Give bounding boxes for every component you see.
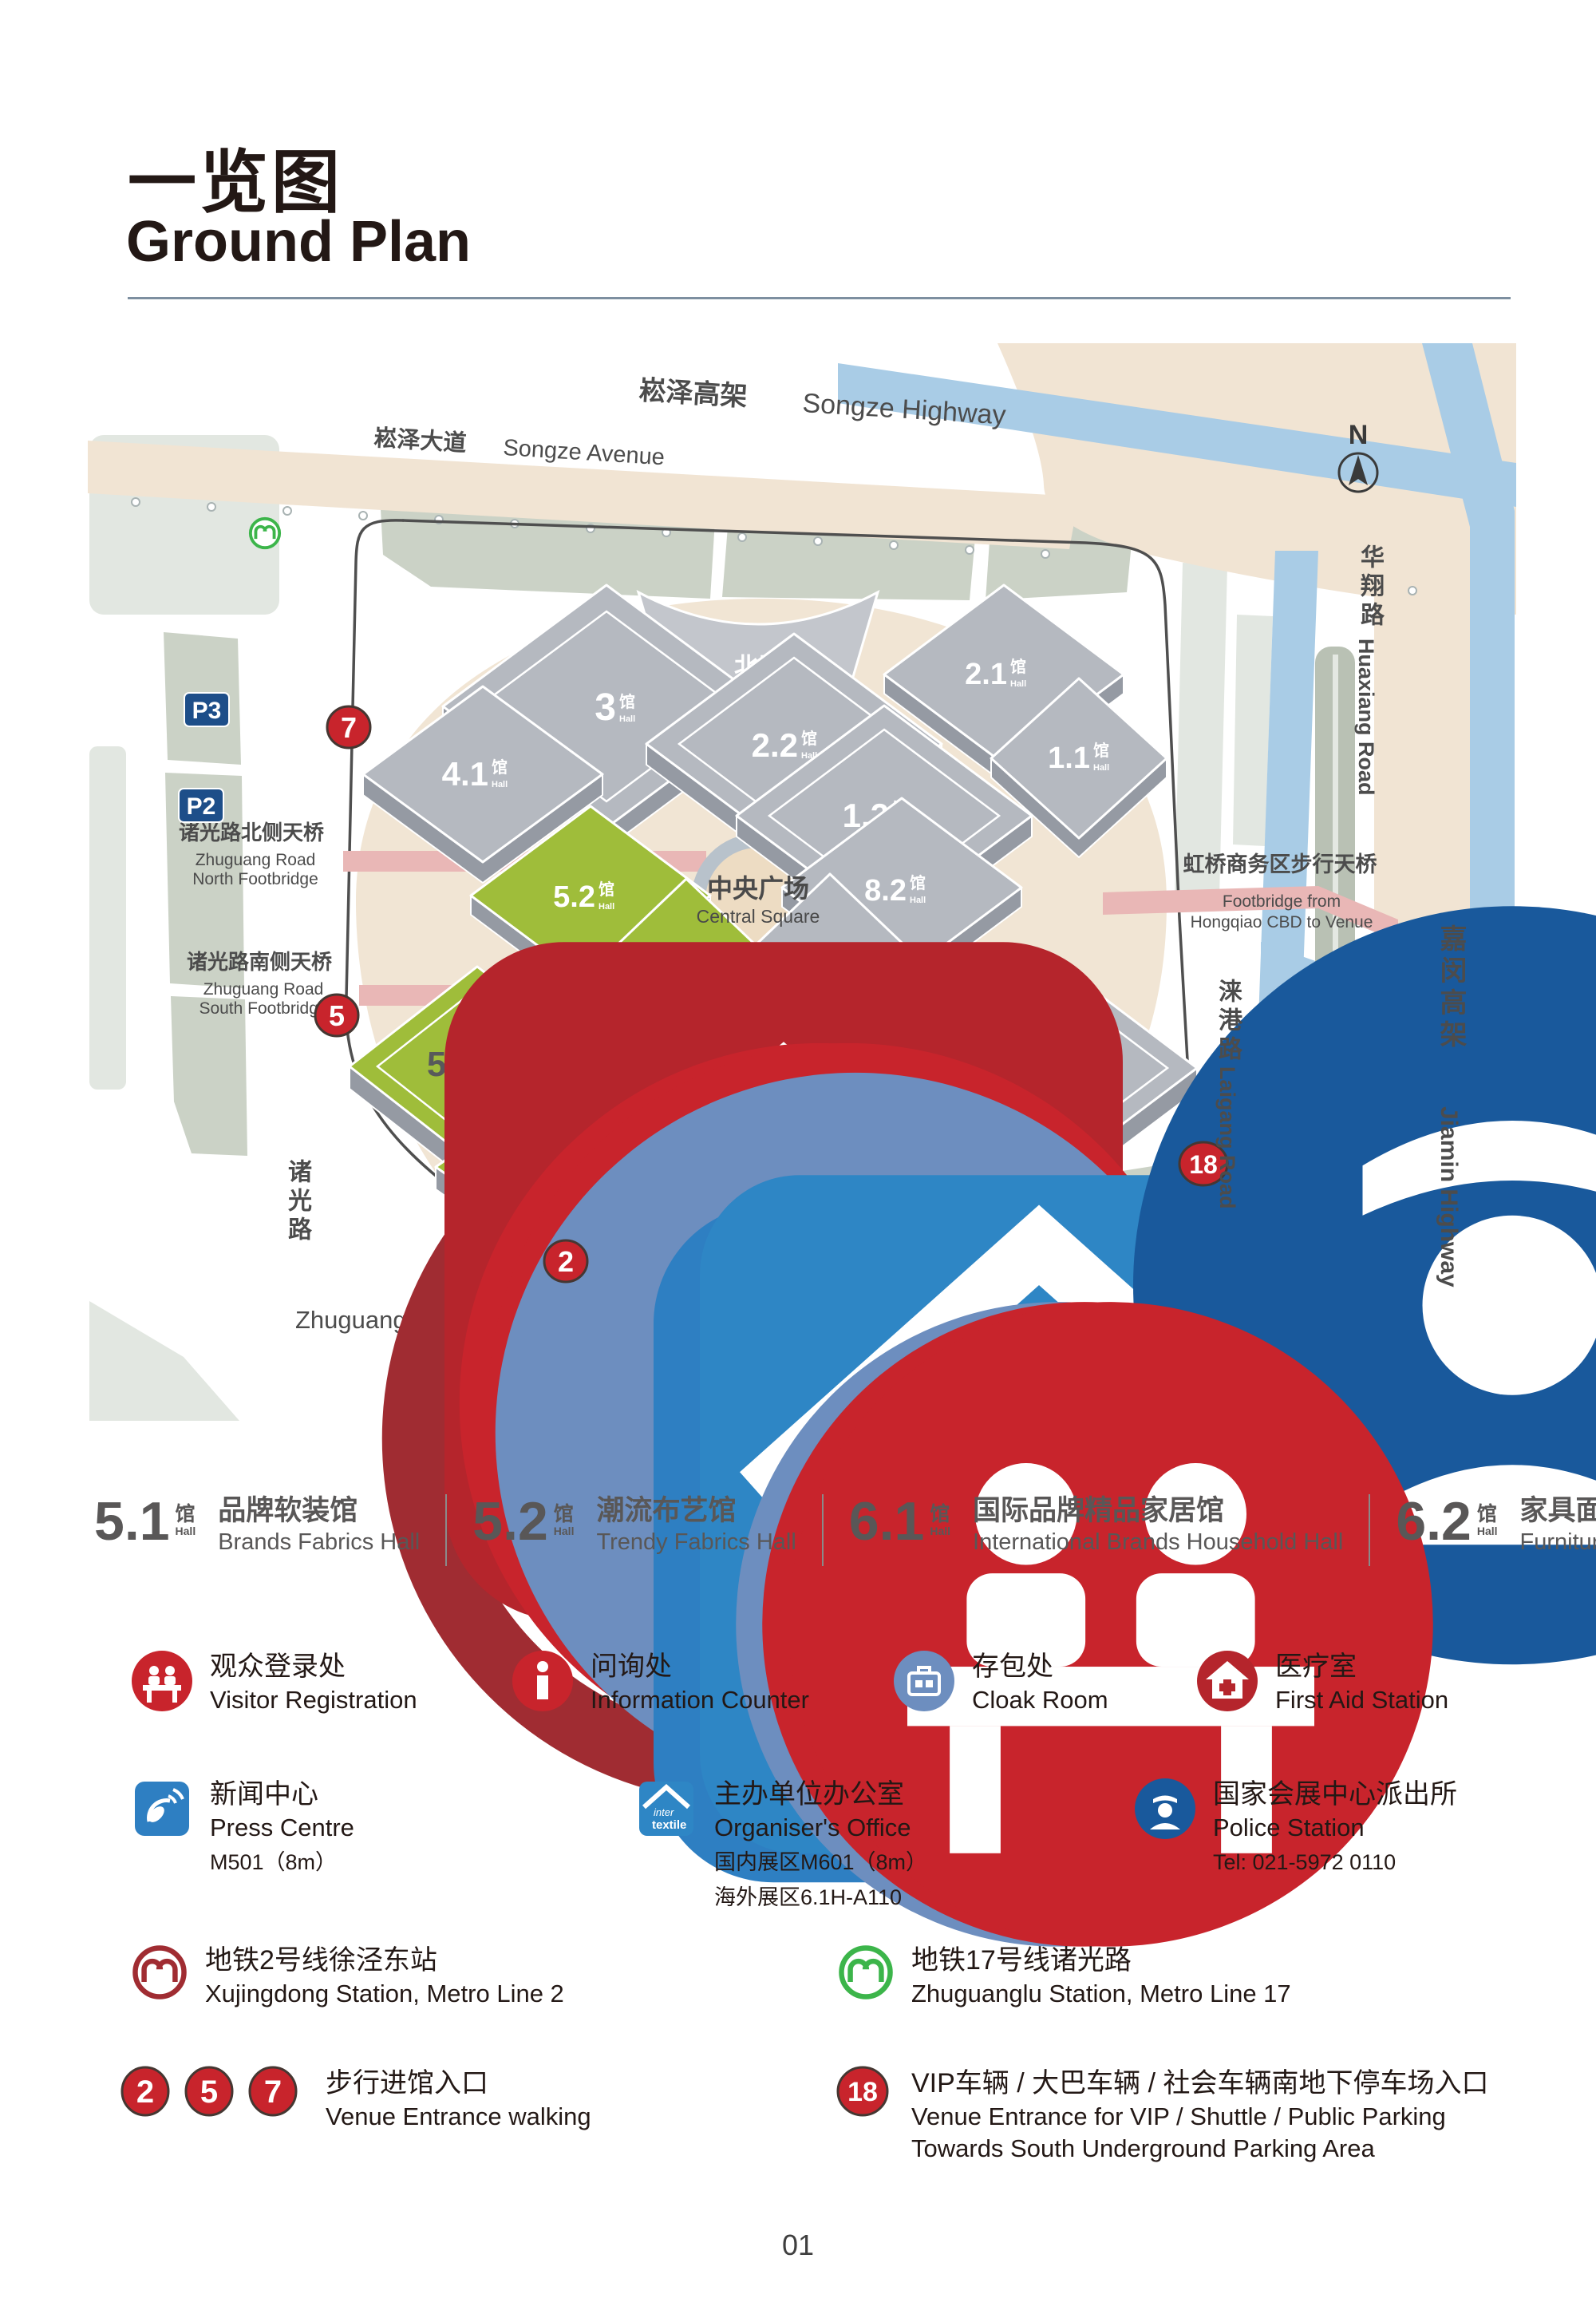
jiamin-highway-cn: 嘉闵高架	[1432, 924, 1471, 1052]
svg-text:Hall: Hall	[1010, 679, 1026, 689]
svg-text:P2: P2	[187, 793, 216, 820]
svg-text:馆: 馆	[619, 692, 635, 711]
svg-text:馆: 馆	[492, 757, 508, 777]
svg-text:2: 2	[558, 1245, 574, 1278]
entrance-marker-18: 18	[836, 2066, 889, 2117]
svg-text:2.2: 2.2	[752, 726, 798, 764]
svg-text:诸光路南侧天桥: 诸光路南侧天桥	[187, 950, 333, 974]
svg-text:5: 5	[329, 999, 345, 1032]
zhuguang-road-cn: 诸光路	[279, 1159, 314, 1245]
svg-text:Hall: Hall	[492, 780, 508, 789]
legend-divider	[822, 1494, 824, 1566]
laigang-road-en: Laigang Road	[1215, 1066, 1239, 1209]
hall-legend-5-1: 5.1 馆Hall 品牌软装馆Brands Fabrics Hall	[94, 1494, 420, 1556]
central-square-label-cn: 中央广场	[707, 874, 809, 903]
hall-legend: 5.1 馆Hall 品牌软装馆Brands Fabrics Hall 5.2 馆…	[94, 1494, 1523, 1566]
organiser-office-icon	[634, 1777, 698, 1841]
hall-legend-6-1: 6.1 馆Hall 国际品牌精品家居馆International Brands …	[849, 1494, 1344, 1556]
marker-5: 5	[315, 995, 358, 1036]
cloak-room-icon	[892, 1649, 956, 1713]
svg-text:馆: 馆	[801, 729, 817, 748]
press-centre-icon	[130, 1777, 194, 1841]
svg-text:7: 7	[341, 711, 357, 744]
svg-text:18: 18	[847, 2077, 878, 2107]
metro-line17-icon	[251, 519, 279, 548]
svg-text:虹桥商务区步行天桥: 虹桥商务区步行天桥	[1183, 852, 1377, 876]
svg-text:Hall: Hall	[910, 896, 926, 905]
visitor-registration-icon	[130, 1649, 194, 1713]
svg-text:Zhuguang Road: Zhuguang Road	[196, 851, 316, 869]
p2-badge: P2	[179, 789, 223, 822]
svg-text:18: 18	[1189, 1150, 1218, 1179]
svg-text:馆: 馆	[598, 880, 614, 899]
legend-press-centre: 新闻中心Press CentreM501（8m）	[130, 1777, 354, 1879]
legend-divider	[445, 1494, 447, 1566]
first-aid-icon	[1195, 1649, 1259, 1713]
svg-text:North Footbridge: North Footbridge	[192, 870, 318, 888]
svg-text:Hall: Hall	[1093, 763, 1109, 773]
svg-text:4.1: 4.1	[442, 755, 488, 793]
legend-cloak-room: 存包处Cloak Room	[892, 1649, 1108, 1716]
entrance-marker-2: 2	[120, 2066, 171, 2117]
svg-text:2: 2	[136, 2075, 154, 2110]
legend-divider	[1369, 1494, 1370, 1566]
svg-text:馆: 馆	[1093, 741, 1109, 760]
page-number: 01	[0, 2229, 1596, 2262]
svg-text:2.1: 2.1	[965, 658, 1007, 691]
svg-text:South Footbridge: South Footbridge	[199, 999, 327, 1018]
legend-visitor-registration: 观众登录处Visitor Registration	[130, 1649, 417, 1716]
legend-metro-line17: 地铁17号线诸光路Zhuguanglu Station, Metro Line …	[836, 1943, 1291, 2010]
hall-legend-6-2: 6.2 馆Hall 家具面料馆Furniture Fabrics Hall	[1396, 1494, 1596, 1556]
svg-text:8.2: 8.2	[864, 874, 907, 908]
svg-text:3: 3	[595, 686, 616, 729]
metro-line2-icon	[130, 1943, 189, 2002]
information-icon	[511, 1649, 575, 1713]
svg-text:馆: 馆	[1010, 657, 1026, 676]
svg-text:诸光路北侧天桥: 诸光路北侧天桥	[179, 821, 325, 844]
legend-entrance-vip: 18 VIP车辆 / 大巴车辆 / 社会车辆南地下停车场入口Venue Entr…	[836, 2066, 1488, 2166]
svg-text:Hall: Hall	[619, 714, 635, 724]
songze-avenue-cn: 崧泽大道	[373, 425, 468, 457]
legend-police-station: 国家会展中心派出所Police StationTel: 021-5972 011…	[1133, 1777, 1457, 1879]
legend-information-counter: 问询处Information Counter	[511, 1649, 809, 1716]
central-square-label-en: Central Square	[697, 906, 820, 927]
metro-line17-icon	[836, 1943, 895, 2002]
svg-text:Hongqiao CBD to Venue: Hongqiao CBD to Venue	[1191, 913, 1373, 931]
svg-text:5: 5	[200, 2075, 218, 2110]
svg-text:N: N	[1349, 420, 1369, 450]
entrance-marker-7: 7	[247, 2066, 298, 2117]
legend-entrance-walking: 2 5 7 步行进馆入口Venue Entrance walking	[120, 2066, 591, 2133]
svg-text:7: 7	[264, 2075, 282, 2110]
huaxiang-road-en: Huaxiang Road	[1353, 639, 1378, 796]
svg-text:馆: 馆	[910, 873, 926, 892]
police-station-icon	[1133, 1777, 1197, 1841]
entrance-marker-5: 5	[184, 2066, 235, 2117]
svg-text:1.1: 1.1	[1048, 742, 1090, 775]
hall-legend-5-2: 5.2 馆Hall 潮流布艺馆Trendy Fabrics Hall	[472, 1494, 796, 1556]
marker-2: 2	[544, 1240, 587, 1282]
marker-7: 7	[327, 706, 370, 748]
ground-plan-page: 一览图 Ground Plan	[0, 0, 1596, 2306]
legend-organiser-office: 主办单位办公室Organiser's Office国内展区M601（8m）海外展…	[634, 1777, 927, 1913]
laigang-road-cn: 涞港路	[1210, 979, 1245, 1065]
svg-text:Zhuguang Road: Zhuguang Road	[203, 980, 324, 999]
jiamin-highway-en: Jiamin Highway	[1435, 1106, 1462, 1287]
svg-text:P3: P3	[192, 698, 222, 724]
huaxiang-road-cn: 华翔路	[1352, 544, 1387, 631]
p3-badge: P3	[184, 693, 229, 726]
songze-avenue-en: Songze Avenue	[503, 435, 666, 470]
svg-text:5.2: 5.2	[553, 880, 595, 914]
legend-first-aid: 医疗室First Aid Station	[1195, 1649, 1448, 1716]
svg-text:Hall: Hall	[598, 902, 614, 912]
legend-metro-line2: 地铁2号线徐泾东站Xujingdong Station, Metro Line …	[130, 1943, 564, 2010]
svg-text:Footbridge from: Footbridge from	[1223, 892, 1341, 911]
songze-highway-cn: 崧泽高架	[638, 375, 749, 412]
